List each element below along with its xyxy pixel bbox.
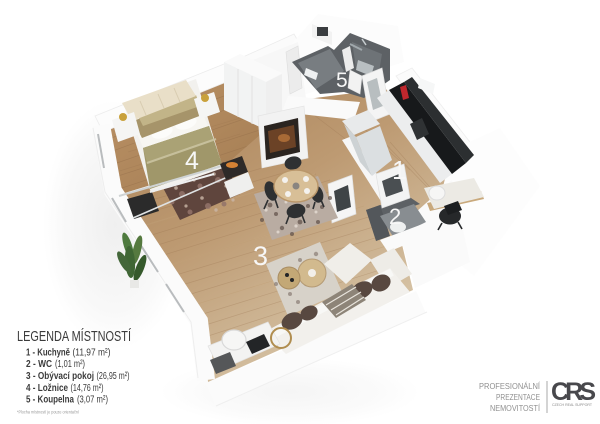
svg-text:CRS: CRS [551, 378, 596, 406]
svg-text:(11,97 m²): (11,97 m²) [73, 348, 111, 359]
svg-text:1 - Kuchyně: 1 - Kuchyně [26, 348, 70, 359]
svg-text:(1,01 m²): (1,01 m²) [55, 359, 85, 370]
svg-text:(14,76 m²): (14,76 m²) [71, 383, 104, 394]
svg-text:(26,95 m²): (26,95 m²) [97, 371, 130, 382]
svg-text:2 - WC: 2 - WC [26, 359, 52, 370]
svg-text:3 - Obývací pokoj: 3 - Obývací pokoj [26, 371, 94, 382]
svg-text:NEMOVITOSTÍ: NEMOVITOSTÍ [490, 404, 541, 413]
svg-text:(3,07 m²): (3,07 m²) [77, 395, 108, 406]
svg-text:CZECH REAL SUPPORT: CZECH REAL SUPPORT [552, 403, 592, 407]
svg-text:LEGENDA MÍSTNOSTÍ: LEGENDA MÍSTNOSTÍ [17, 328, 131, 345]
svg-text:5: 5 [336, 69, 348, 92]
svg-text:5 - Koupelna: 5 - Koupelna [26, 395, 74, 406]
svg-text:PROFESIONÁLNÍ: PROFESIONÁLNÍ [479, 382, 541, 391]
svg-text:2: 2 [389, 204, 401, 229]
svg-text:*Plocha místností je pouze ori: *Plocha místností je pouze orientační [17, 410, 80, 415]
svg-text:1: 1 [392, 155, 406, 185]
svg-text:PREZENTACE: PREZENTACE [496, 393, 540, 402]
svg-text:4 - Ložnice: 4 - Ložnice [26, 383, 68, 394]
svg-text:3: 3 [253, 241, 268, 271]
svg-text:4: 4 [185, 147, 199, 175]
